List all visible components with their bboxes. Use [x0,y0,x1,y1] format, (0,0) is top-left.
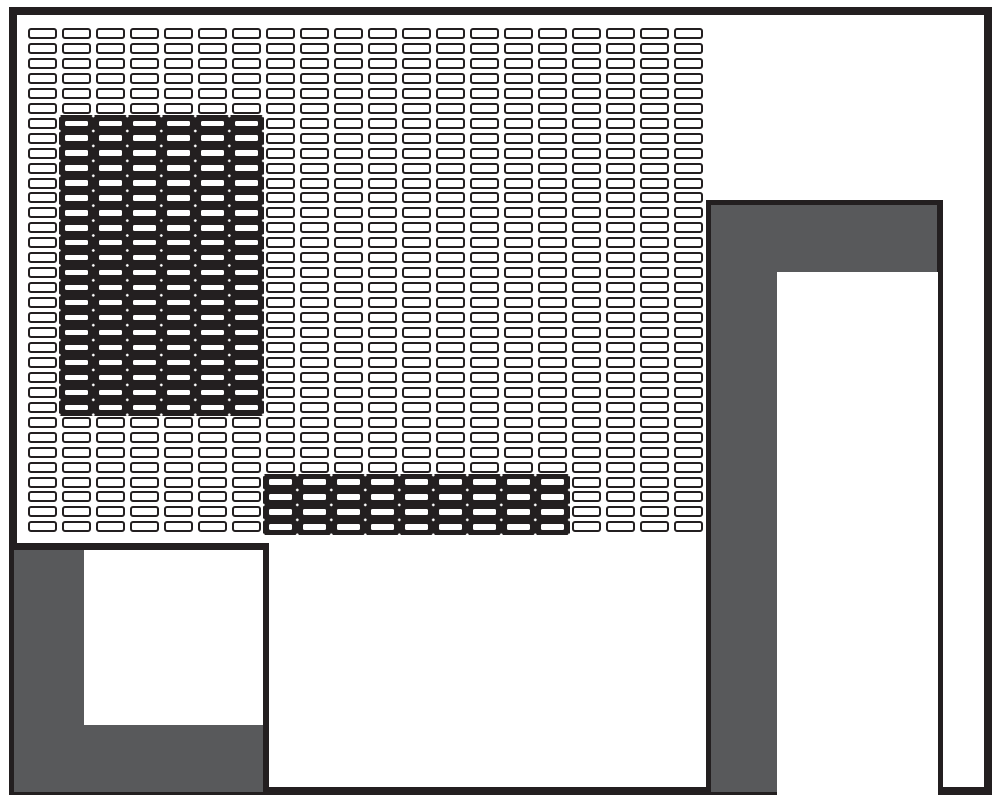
grid-cell-highlighted [65,270,88,275]
grid-cell [266,178,295,189]
grid-cell [504,192,533,203]
grid-cell [606,491,635,502]
grid-cell-highlighted [99,390,122,395]
grid-cell [436,342,465,353]
grid-cell-highlighted [99,330,122,335]
grid-cell [232,477,261,488]
grid-cell [232,506,261,517]
grid-cell-highlighted [65,330,88,335]
grid-cell [640,372,669,383]
grid-cell-highlighted [167,315,190,320]
grid-cell [572,133,601,144]
grid-cell-highlighted [65,135,88,140]
grid-cell [300,103,329,114]
grid-cell [266,417,295,428]
grid-cell-highlighted [133,255,156,260]
grid-cell-highlighted [337,524,360,529]
grid-cell-highlighted [235,375,258,380]
grid-cell [538,417,567,428]
grid-cell [402,207,431,218]
grid-cell [606,327,635,338]
grid-cell [538,372,567,383]
grid-cell-highlighted [65,225,88,230]
grid-cell [504,357,533,368]
grid-cell [334,267,363,278]
grid-cell-highlighted [303,524,326,529]
grid-cell [266,282,295,293]
grid-cell [674,88,703,99]
grid-cell-highlighted [439,494,462,499]
grid-cell [334,417,363,428]
grid-cell [368,297,397,308]
grid-cell [572,327,601,338]
grid-cell [334,372,363,383]
grid-cell [640,118,669,129]
grid-cell-highlighted [65,180,88,185]
grid-cell [640,58,669,69]
grid-cell-highlighted [201,315,224,320]
grid-cell [402,402,431,413]
grid-cell-highlighted [133,300,156,305]
grid-cell [538,222,567,233]
grid-cell [640,432,669,443]
grid-cell [538,178,567,189]
grid-cell [674,357,703,368]
grid-cell [96,88,125,99]
grid-cell [334,432,363,443]
grid-cell [572,178,601,189]
grid-cell-highlighted [167,165,190,170]
grid-cell [504,327,533,338]
grid-cell [334,103,363,114]
grid-cell [572,447,601,458]
grid-cell [198,506,227,517]
grid-cell [674,103,703,114]
grid-cell-highlighted [133,195,156,200]
grid-cell [232,88,261,99]
grid-cell [96,43,125,54]
grid-cell-highlighted [133,375,156,380]
grid-cell [62,462,91,473]
grid-cell [402,462,431,473]
grid-cell [470,267,499,278]
grid-cell [368,282,397,293]
grid-cell [232,432,261,443]
grid-cell [232,447,261,458]
grid-cell [640,282,669,293]
grid-cell [674,192,703,203]
grid-cell [164,58,193,69]
grid-cell [402,58,431,69]
grid-cell-highlighted [201,345,224,350]
grid-cell-highlighted [167,150,190,155]
grid-cell [436,417,465,428]
grid-cell [266,88,295,99]
grid-cell [300,312,329,323]
grid-cell [368,163,397,174]
grid-cell [28,43,57,54]
grid-cell [130,491,159,502]
grid-cell-highlighted [133,240,156,245]
grid-cell [300,372,329,383]
grid-cell [368,148,397,159]
grid-cell [436,148,465,159]
grid-cell [606,506,635,517]
grid-cell [368,192,397,203]
grid-cell [130,28,159,39]
grid-cell [436,372,465,383]
grid-cell [28,447,57,458]
grid-cell [300,148,329,159]
grid-cell-highlighted [507,524,530,529]
grid-cell-highlighted [99,165,122,170]
grid-cell [402,447,431,458]
grid-cell [28,148,57,159]
grid-cell [266,387,295,398]
grid-cell [504,28,533,39]
grid-cell [28,103,57,114]
grid-cell [606,417,635,428]
grid-cell-highlighted [99,121,122,126]
grid-cell [470,133,499,144]
grid-cell [640,43,669,54]
grid-cell [674,58,703,69]
grid-cell-highlighted [371,479,394,484]
grid-cell [674,28,703,39]
grid-cell-highlighted [439,509,462,514]
grid-cell [368,462,397,473]
grid-cell [368,222,397,233]
grid-cell-highlighted [133,210,156,215]
grid-cell [402,432,431,443]
grid-cell-highlighted [167,330,190,335]
grid-cell [62,477,91,488]
grid-cell [640,402,669,413]
grid-cell-highlighted [133,150,156,155]
grid-cell [96,491,125,502]
grid-cell [436,88,465,99]
grid-cell [96,477,125,488]
grid-cell [266,73,295,84]
grid-cell [504,148,533,159]
grid-cell [436,222,465,233]
grid-cell [266,462,295,473]
grid-cell [232,103,261,114]
grid-cell [198,521,227,532]
grid-cell [572,462,601,473]
grid-cell [300,43,329,54]
grid-cell [504,402,533,413]
grid-cell [504,372,533,383]
grid-cell-highlighted [99,195,122,200]
grid-cell [538,133,567,144]
grid-cell [402,73,431,84]
grid-cell [198,43,227,54]
grid-cell [28,267,57,278]
grid-cell [504,462,533,473]
grid-cell-highlighted [167,225,190,230]
grid-cell [640,178,669,189]
grid-cell-highlighted [235,405,258,410]
grid-cell [504,118,533,129]
grid-cell-highlighted [235,330,258,335]
grid-cell [606,192,635,203]
grid-cell [334,192,363,203]
grid-cell [674,207,703,218]
grid-cell [470,417,499,428]
grid-cell [164,88,193,99]
grid-cell-highlighted [167,375,190,380]
grid-cell [368,432,397,443]
grid-cell [674,506,703,517]
grid-cell-highlighted [405,494,428,499]
grid-cell [164,43,193,54]
grid-cell [606,447,635,458]
grid-cell [572,207,601,218]
grid-cell [606,387,635,398]
grid-cell-highlighted [541,479,564,484]
grid-cell [198,477,227,488]
grid-cell [640,506,669,517]
grid-cell [266,372,295,383]
grid-cell-highlighted [99,210,122,215]
grid-cell-highlighted [167,390,190,395]
grid-cell [402,88,431,99]
grid-cell [130,73,159,84]
grid-cell [62,417,91,428]
grid-cell [28,402,57,413]
grid-cell [674,178,703,189]
grid-cell-highlighted [167,300,190,305]
grid-cell-highlighted [405,479,428,484]
grid-cell [504,297,533,308]
grid-cell [368,103,397,114]
grid-cell [28,432,57,443]
grid-cell-highlighted [65,150,88,155]
grid-cell [572,521,601,532]
grid-cell [538,43,567,54]
grid-cell [300,178,329,189]
grid-cell [572,506,601,517]
grid-cell [470,118,499,129]
grid-cell-highlighted [201,210,224,215]
grid-cell [300,73,329,84]
grid-cell-highlighted [133,360,156,365]
grid-cell [470,58,499,69]
grid-cell [28,342,57,353]
grid-cell-highlighted [201,135,224,140]
grid-cell [130,43,159,54]
grid-cell [674,521,703,532]
grid-cell [368,357,397,368]
grid-cell [538,252,567,263]
grid-cell [198,417,227,428]
grid-cell [606,43,635,54]
grid-cell [674,462,703,473]
grid-cell [28,192,57,203]
grid-cell [334,327,363,338]
grid-cell-highlighted [65,165,88,170]
grid-cell [130,103,159,114]
grid-cell-highlighted [201,390,224,395]
grid-cell [470,222,499,233]
grid-cell [572,163,601,174]
grid-cell-highlighted [133,270,156,275]
grid-cell [572,282,601,293]
grid-cell [606,118,635,129]
grid-cell [538,402,567,413]
grid-cell-highlighted [541,524,564,529]
grid-cell-highlighted [201,225,224,230]
grid-cell [334,207,363,218]
grid-cell [402,118,431,129]
grid-cell [300,357,329,368]
grid-cell [232,462,261,473]
grid-cell [436,402,465,413]
grid-cell [640,222,669,233]
grid-cell [62,521,91,532]
grid-cell [266,148,295,159]
grid-cell [606,267,635,278]
grid-cell [28,387,57,398]
grid-cell [470,372,499,383]
grid-cell-highlighted [201,180,224,185]
grid-cell [334,88,363,99]
grid-cell-highlighted [201,405,224,410]
grid-cell [538,342,567,353]
grid-cell [266,312,295,323]
grid-cell [402,237,431,248]
grid-cell [470,462,499,473]
grid-cell [28,178,57,189]
grid-cell [436,163,465,174]
grid-cell-highlighted [167,405,190,410]
grid-cell [504,417,533,428]
grid-cell [300,192,329,203]
grid-cell-highlighted [201,375,224,380]
grid-cell [232,73,261,84]
grid-cell [640,207,669,218]
grid-cell [28,133,57,144]
grid-cell [470,297,499,308]
grid-cell [368,312,397,323]
grid-cell [96,28,125,39]
grid-cell-highlighted [201,150,224,155]
grid-cell [62,432,91,443]
grid-cell [504,312,533,323]
grid-cell [504,342,533,353]
grid-cell [266,297,295,308]
grid-cell-highlighted [167,255,190,260]
grid-cell [402,357,431,368]
grid-cell [572,357,601,368]
grid-cell [198,28,227,39]
grid-cell-highlighted [65,405,88,410]
grid-cell [300,237,329,248]
grid-cell-highlighted [99,135,122,140]
grid-cell [470,432,499,443]
grid-cell [164,73,193,84]
grid-cell [470,342,499,353]
grid-cell [640,342,669,353]
grid-cell [470,312,499,323]
grid-cell [606,28,635,39]
grid-cell [436,58,465,69]
grid-cell [402,133,431,144]
grid-cell-highlighted [201,360,224,365]
grid-cell [606,58,635,69]
grid-cell [334,342,363,353]
grid-cell-highlighted [235,270,258,275]
grid-cell [28,282,57,293]
grid-cell [674,222,703,233]
grid-cell-highlighted [65,210,88,215]
grid-cell [28,477,57,488]
grid-cell [436,267,465,278]
grid-cell [96,103,125,114]
grid-cell [402,163,431,174]
grid-cell [368,133,397,144]
grid-cell-highlighted [133,285,156,290]
grid-cell [674,491,703,502]
grid-cell-highlighted [201,300,224,305]
grid-cell-highlighted [235,315,258,320]
grid-cell [538,58,567,69]
grid-cell-highlighted [133,165,156,170]
grid-cell [300,88,329,99]
grid-cell [470,237,499,248]
grid-cell [266,133,295,144]
grid-cell [300,267,329,278]
grid-cell [538,103,567,114]
grid-cell [266,58,295,69]
grid-cell-highlighted [337,494,360,499]
grid-cell [368,118,397,129]
grid-cell-highlighted [235,195,258,200]
grid-cell [266,222,295,233]
grid-cell [538,163,567,174]
grid-cell [334,118,363,129]
grid-cell [402,43,431,54]
grid-cell-highlighted [201,195,224,200]
grid-cell-highlighted [99,180,122,185]
grid-cell [538,148,567,159]
grid-cell [368,43,397,54]
grid-cell-highlighted [235,255,258,260]
grid-cell [300,207,329,218]
grid-cell-highlighted [65,255,88,260]
grid-cell [538,432,567,443]
grid-cell [28,327,57,338]
grid-cell [470,88,499,99]
grid-cell [300,447,329,458]
grid-cell [606,178,635,189]
grid-cell [674,297,703,308]
grid-cell [300,58,329,69]
grid-cell [28,28,57,39]
grid-cell [674,267,703,278]
grid-cell [436,312,465,323]
grid-cell [62,88,91,99]
grid-cell [130,506,159,517]
grid-cell [436,462,465,473]
grid-cell [368,178,397,189]
grid-cell-highlighted [201,270,224,275]
grid-cell [334,402,363,413]
grid-cell-highlighted [337,479,360,484]
grid-cell [62,43,91,54]
grid-cell-highlighted [405,509,428,514]
